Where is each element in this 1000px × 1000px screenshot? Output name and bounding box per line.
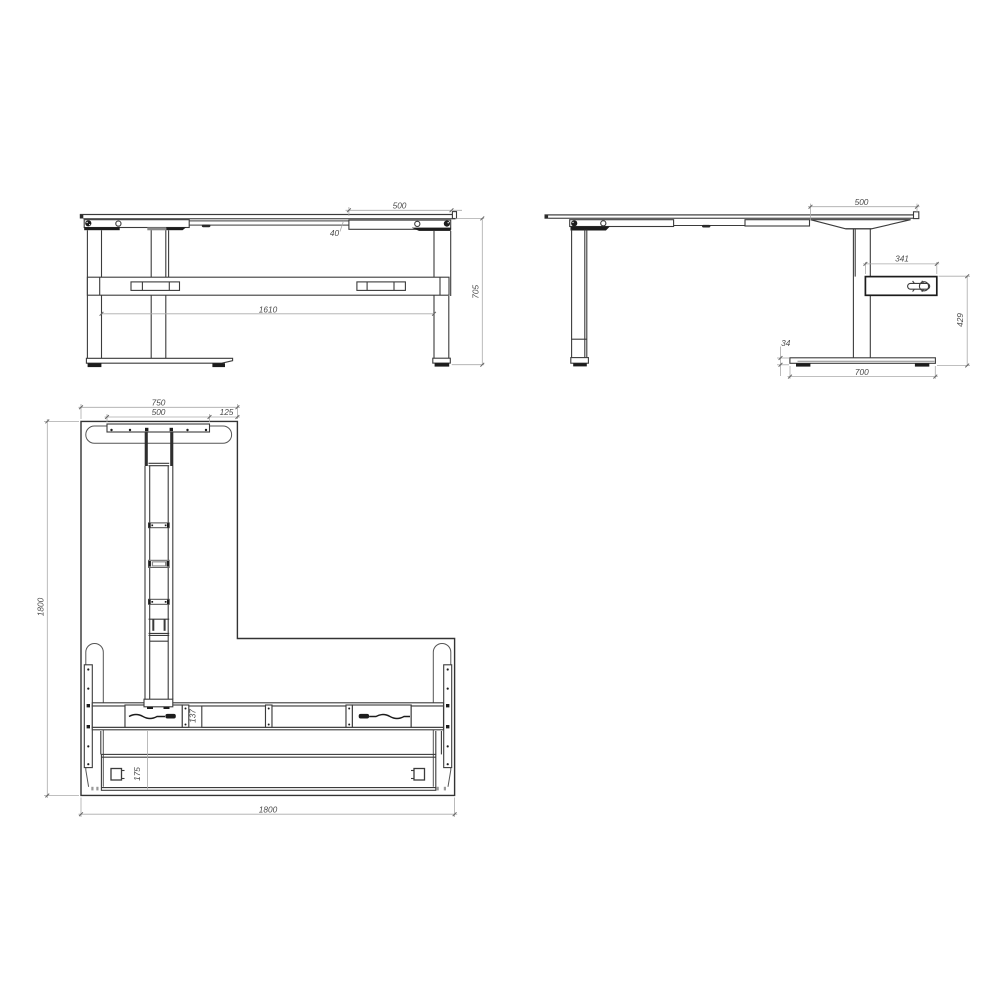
svg-text:175: 175 — [132, 767, 142, 781]
svg-text:1800: 1800 — [36, 597, 46, 616]
svg-text:40: 40 — [330, 228, 340, 238]
svg-text:1800: 1800 — [259, 805, 278, 815]
svg-text:429: 429 — [955, 313, 965, 327]
svg-text:705: 705 — [471, 284, 481, 298]
svg-text:34: 34 — [781, 338, 791, 348]
svg-text:500: 500 — [855, 197, 869, 207]
svg-text:341: 341 — [895, 253, 909, 263]
svg-text:750: 750 — [152, 398, 166, 408]
svg-text:500: 500 — [152, 407, 166, 417]
svg-text:137: 137 — [187, 709, 197, 723]
svg-text:1610: 1610 — [259, 304, 278, 314]
svg-text:500: 500 — [393, 201, 407, 211]
svg-text:700: 700 — [855, 367, 869, 377]
svg-text:125: 125 — [220, 407, 234, 417]
